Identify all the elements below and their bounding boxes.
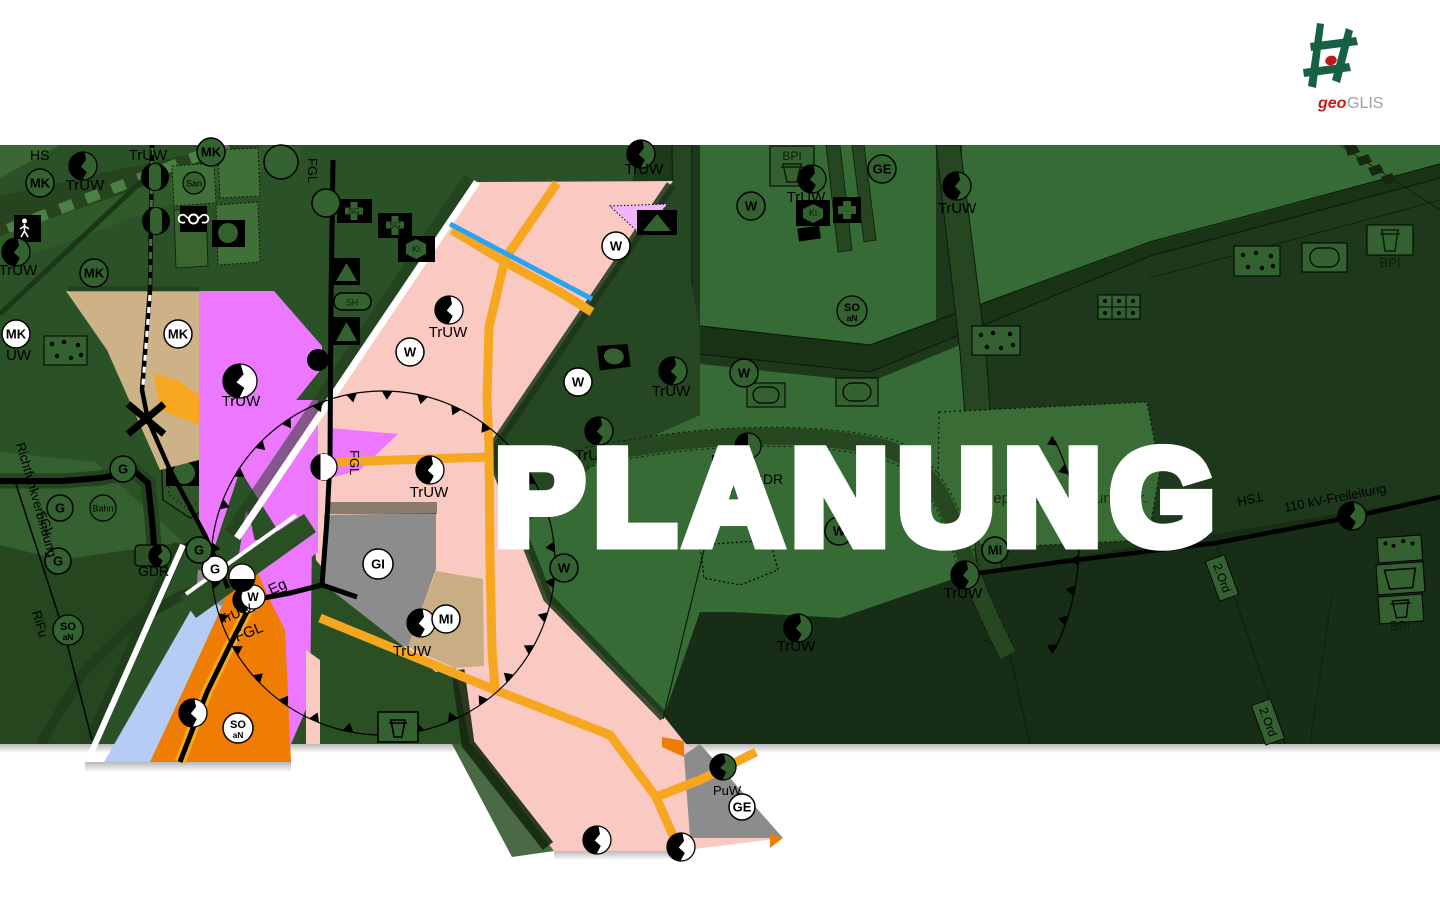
svg-text:TrUW: TrUW [652,383,691,400]
svg-text:FGL: FGL [347,450,362,475]
svg-text:TrUW: TrUW [429,324,468,341]
svg-text:TrUW: TrUW [129,147,168,164]
svg-text:aN: aN [63,632,74,642]
svg-text:San: San [186,179,202,189]
svg-text:aN: aN [847,313,858,323]
svg-text:TrUW: TrUW [222,393,261,410]
svg-text:MK: MK [84,266,105,281]
svg-text:HS: HS [30,147,49,163]
svg-text:TrUW: TrUW [410,484,449,501]
svg-text:MK: MK [6,327,27,342]
svg-text:PuW: PuW [713,783,742,798]
svg-text:PLANUNG: PLANUNG [495,424,1224,573]
svg-text:W: W [738,366,751,381]
svg-text:W: W [610,239,623,254]
svg-text:geo: geo [1317,95,1347,112]
svg-text:TrUW: TrUW [787,189,826,206]
svg-text:Bahn: Bahn [92,504,113,514]
svg-text:MK: MK [168,327,189,342]
svg-text:aN: aN [233,730,244,740]
svg-text:SG: SG [389,221,401,230]
svg-text:GE: GE [873,162,892,177]
svg-text:G: G [210,562,220,577]
svg-text:TrUW: TrUW [393,643,432,660]
svg-text:GLIS: GLIS [1347,95,1383,112]
svg-text:MK: MK [30,176,51,191]
svg-text:GE: GE [733,800,752,815]
svg-text:GI: GI [371,557,385,572]
svg-text:SG: SG [348,207,360,216]
svg-text:BPI: BPI [1380,255,1401,270]
svg-text:TrUW: TrUW [625,161,664,178]
svg-text:BPI: BPI [782,149,801,163]
svg-text:SH: SH [346,298,359,308]
svg-text:Ki: Ki [809,208,817,218]
svg-text:GDR: GDR [138,563,169,579]
svg-text:W: W [404,345,417,360]
svg-text:FGL: FGL [305,158,320,183]
svg-text:MI: MI [439,612,453,627]
svg-text:G: G [118,462,128,477]
svg-text:G: G [55,501,65,516]
svg-text:TrUW: TrUW [777,638,816,655]
svg-text:TrUW: TrUW [0,262,38,279]
svg-text:BPl: BPl [1390,618,1410,633]
svg-text:TrUW: TrUW [66,177,105,194]
svg-text:MK: MK [201,145,222,160]
svg-text:TrUW: TrUW [938,200,977,217]
svg-text:G: G [194,543,204,558]
svg-text:TrUW: TrUW [944,585,983,602]
svg-text:UW: UW [6,347,32,364]
svg-text:Ki: Ki [412,244,420,254]
svg-text:W: W [745,199,758,214]
svg-text:W: W [572,375,585,390]
